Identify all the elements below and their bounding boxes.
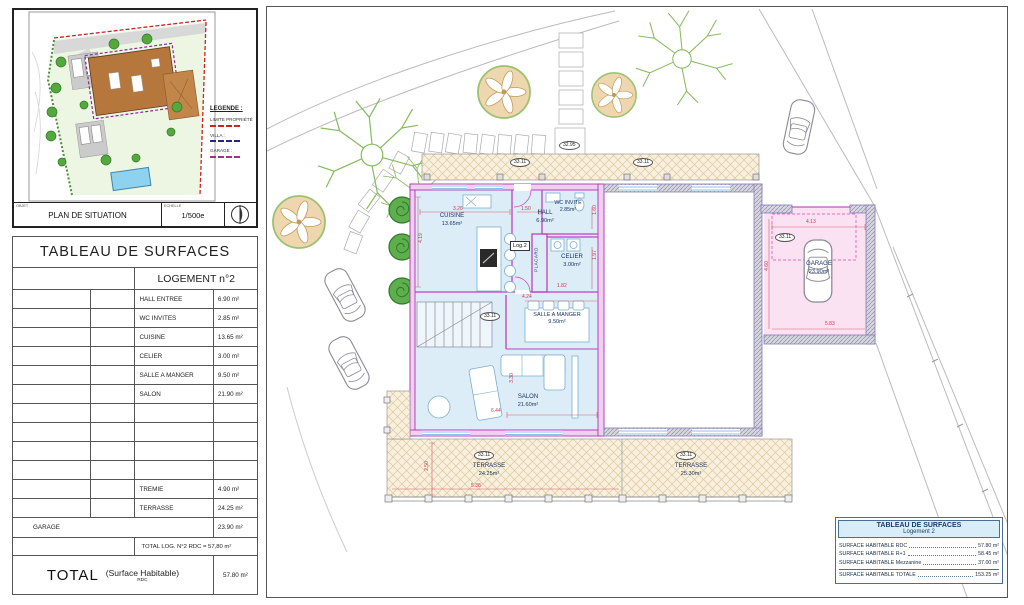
table-row: [13, 461, 258, 480]
title-cell-echelle: ECHELLE 1/500e: [162, 203, 225, 226]
row-label: [135, 404, 213, 423]
total-sublabel: (Surface Habitable): [106, 568, 179, 578]
summary-header: TABLEAU DE SURFACES Logement 2: [838, 520, 1000, 538]
row-label: TREMIE: [135, 480, 213, 499]
surfaces-table-panel: TABLEAU DE SURFACES LOGEMENT n°2 HALL EN…: [12, 236, 258, 595]
table-row: TREMIE4.90 m²: [13, 480, 258, 499]
legend-label: VILLA :: [210, 133, 254, 139]
row-value: 24.25 m²: [213, 499, 257, 518]
dimension-label: 1.50: [521, 206, 531, 212]
row-label: SALLE A MANGER: [135, 366, 213, 385]
objet-caption: OBJET: [16, 204, 28, 208]
summary-title: TABLEAU DE SURFACES: [839, 522, 999, 529]
dimension-label: 3.26: [453, 206, 463, 212]
drawing-sheet: LEGENDE : LIMITE PROPRIÉTÉ VILLA : GARAG…: [0, 0, 1024, 605]
total-value: 57.80 m²: [213, 556, 257, 595]
row-value: 3.00 m²: [213, 347, 257, 366]
dimension-label: 1.60: [592, 200, 598, 220]
unit-label-log2: Log.2: [510, 241, 530, 251]
dimension-label: 3.30: [509, 368, 515, 388]
room-label-cuisine: CUISINE 13.65m²: [425, 213, 479, 227]
dimension-label: 4.19: [418, 228, 424, 248]
room-label-wc-invite: WC INVITE 2.85m²: [543, 200, 593, 213]
floor-plan-drawing: [267, 7, 1007, 597]
row-label: GARAGE: [13, 518, 214, 538]
table-row: [13, 404, 258, 423]
room-label-garage: GARAGE 23.90m²: [789, 261, 849, 275]
level-marker: 33.11: [676, 451, 696, 460]
dimension-label: 5.83: [825, 321, 835, 327]
total-sublabel2: RDC: [106, 578, 179, 583]
legend-label: LIMITE PROPRIÉTÉ: [210, 117, 254, 123]
dimension-label: 2.50: [424, 456, 430, 476]
empty-cell: [13, 268, 135, 290]
subtotal-text: TOTAL LOG. N°2 RDC = 57,80 m²: [135, 538, 258, 556]
summary-row: SURFACE HABITABLE R+158.45 m²: [839, 551, 999, 557]
room-label-celier: CELIER 3.00m²: [547, 254, 597, 268]
table-row: [13, 423, 258, 442]
north-compass-icon: [225, 203, 256, 226]
row-value: 13.65 m²: [213, 328, 257, 347]
dimension-label: 4.24: [522, 294, 532, 300]
table-row: WC INVITES2.85 m²: [13, 309, 258, 328]
table-row-total: TOTAL (Surface Habitable) RDC 57.80 m²: [13, 556, 258, 595]
row-value: [213, 461, 257, 480]
echelle-caption: ECHELLE: [164, 204, 181, 208]
level-marker: 33.11: [480, 312, 500, 321]
legend-line-red: [210, 125, 240, 127]
room-label-terrasse-2: TERRASSE 25.30m²: [661, 463, 721, 477]
table-row: TERRASSE24.25 m²: [13, 499, 258, 518]
legend: LEGENDE : LIMITE PROPRIÉTÉ VILLA : GARAG…: [210, 106, 254, 164]
row-value: 6.90 m²: [213, 290, 257, 309]
legend-item-limite: LIMITE PROPRIÉTÉ: [210, 117, 254, 127]
row-label: HALL ENTREE: [135, 290, 213, 309]
title-cell-objet: OBJET PLAN DE SITUATION: [14, 203, 162, 226]
surfaces-table: TABLEAU DE SURFACES LOGEMENT n°2 HALL EN…: [12, 236, 258, 595]
row-value: 21.90 m²: [213, 385, 257, 404]
row-value: [213, 404, 257, 423]
row-label: [135, 461, 213, 480]
level-marker: 33.11: [775, 233, 795, 242]
dimension-label: 1.97: [592, 245, 598, 265]
summary-table: TABLEAU DE SURFACES Logement 2 SURFACE H…: [835, 517, 1003, 584]
row-label: CELIER: [135, 347, 213, 366]
row-label: [135, 423, 213, 442]
summary-subtitle: Logement 2: [839, 529, 999, 535]
summary-row: SURFACE HABITABLE Mezzanine37.00 m²: [839, 560, 999, 566]
summary-row: SURFACE HABITABLE RDC57.80 m²: [839, 543, 999, 549]
scale-value: 1/500e: [162, 211, 224, 220]
row-value: 23.90 m²: [213, 518, 257, 538]
row-label: SALON: [135, 385, 213, 404]
room-label-salon: SALON 21.60m²: [503, 394, 553, 408]
row-label: CUISINE: [135, 328, 213, 347]
table-row-garage: GARAGE23.90 m²: [13, 518, 258, 538]
row-value: 9.50 m²: [213, 366, 257, 385]
row-label: WC INVITES: [135, 309, 213, 328]
table-row: CELIER3.00 m²: [13, 347, 258, 366]
title-cell-compass: [225, 203, 256, 226]
row-value: [213, 442, 257, 461]
plan-title: PLAN DE SITUATION: [14, 211, 161, 220]
legend-label: GARAGE :: [210, 148, 254, 154]
placard-label: PLACARD: [534, 243, 539, 277]
row-label: TERRASSE: [135, 499, 213, 518]
site-plan-panel: LEGENDE : LIMITE PROPRIÉTÉ VILLA : GARAG…: [12, 8, 258, 228]
dimension-label: 1.82: [557, 283, 567, 289]
table-row: HALL ENTREE6.90 m²: [13, 290, 258, 309]
table-header-logement: LOGEMENT n°2: [135, 268, 258, 290]
level-marker: 32.95: [559, 141, 580, 150]
total-label: TOTAL: [47, 567, 99, 584]
summary-row-total: SURFACE HABITABLE TOTALE153.25 m²: [839, 569, 999, 578]
legend-line-magenta: [210, 156, 240, 158]
table-row: SALON21.90 m²: [13, 385, 258, 404]
dimension-label: 4.13: [806, 219, 816, 225]
legend-item-villa: VILLA :: [210, 133, 254, 143]
table-row: CUISINE13.65 m²: [13, 328, 258, 347]
level-marker: 33.11: [510, 158, 530, 167]
room-label-terrasse-1: TERRASSE 24.25m²: [459, 463, 519, 477]
dimension-label: 5.38: [471, 483, 481, 489]
row-value: [213, 423, 257, 442]
row-value: 4.90 m²: [213, 480, 257, 499]
level-marker: 33.11: [633, 158, 653, 167]
table-row-subtotal: TOTAL LOG. N°2 RDC = 57,80 m²: [13, 538, 258, 556]
legend-line-navy: [210, 140, 240, 142]
table-title: TABLEAU DE SURFACES: [13, 237, 258, 268]
dimension-label: 4.60: [764, 256, 770, 276]
table-row: SALLE A MANGER9.50 m²: [13, 366, 258, 385]
row-value: 2.85 m²: [213, 309, 257, 328]
level-marker: 33.11: [474, 451, 494, 460]
legend-item-garage: GARAGE :: [210, 148, 254, 158]
room-label-salle-a-manger: SALLE A MANGER 9.50m²: [530, 312, 584, 326]
row-label: [135, 442, 213, 461]
floor-plan-panel: CUISINE 13.65m² HALL 6.90m² WC INVITE 2.…: [266, 6, 1008, 598]
title-bar: OBJET PLAN DE SITUATION ECHELLE 1/500e: [14, 202, 256, 226]
legend-title: LEGENDE :: [210, 106, 254, 112]
table-row: [13, 442, 258, 461]
dimension-label: 6.44: [491, 408, 501, 414]
